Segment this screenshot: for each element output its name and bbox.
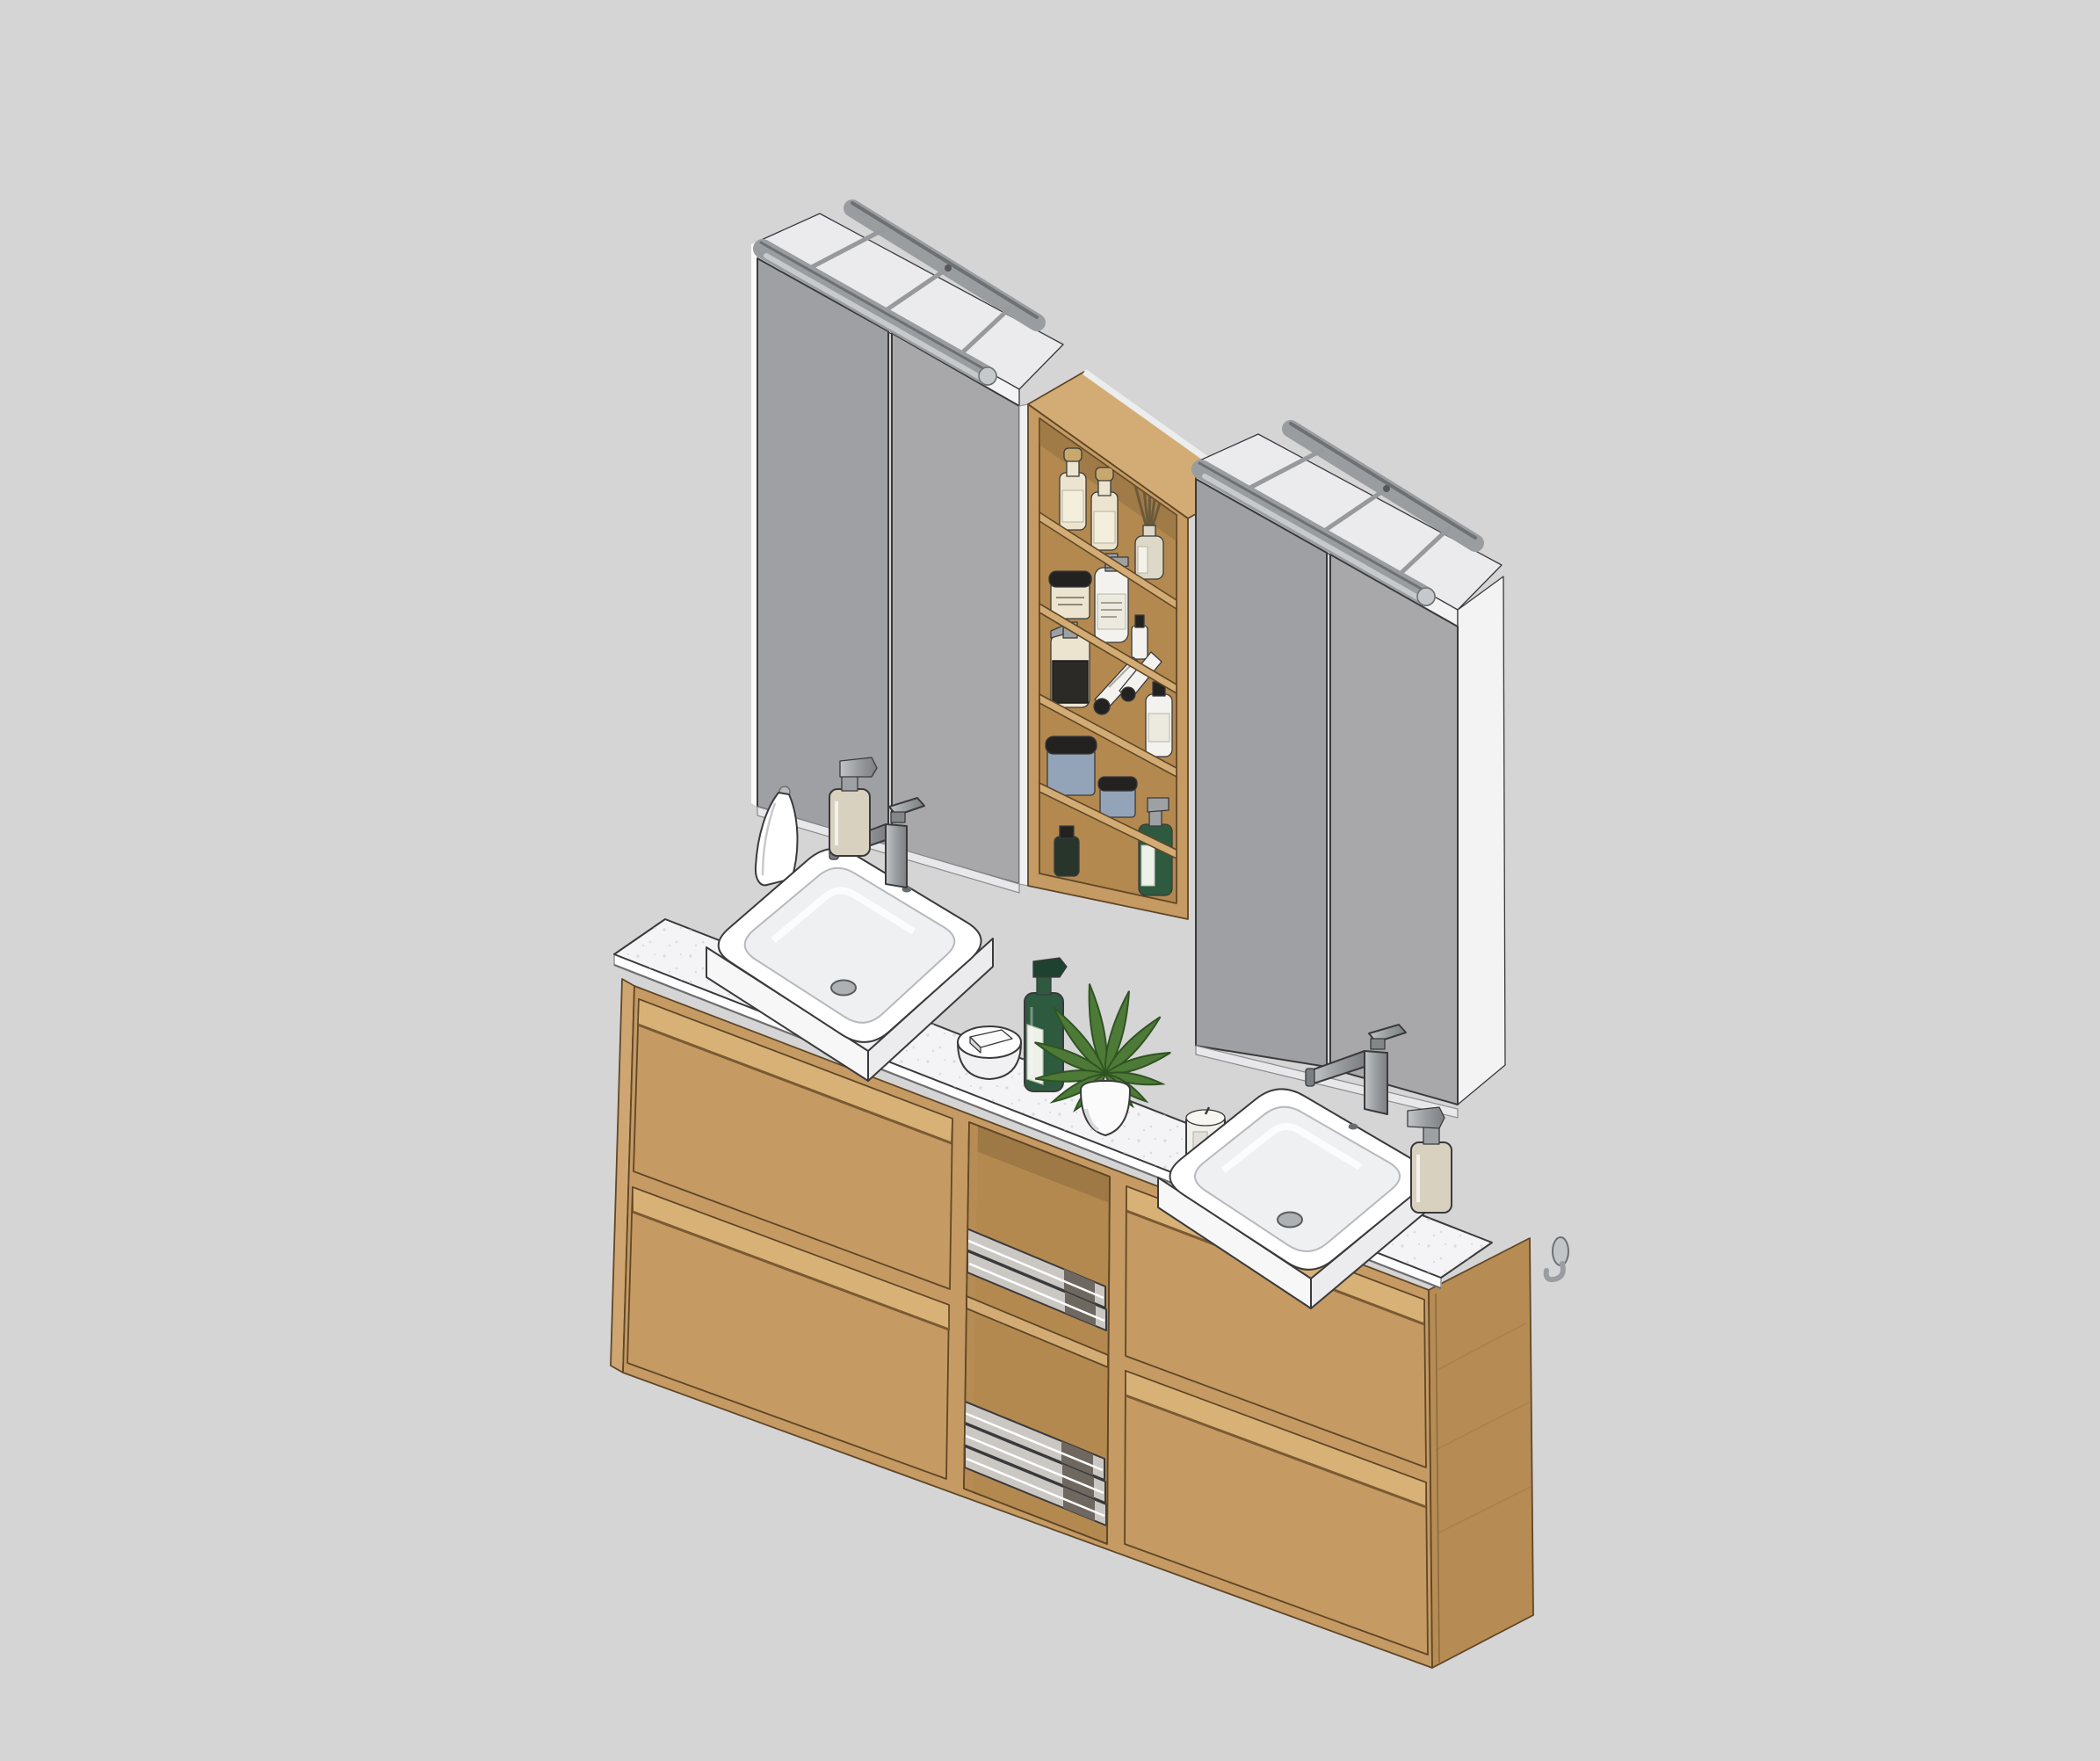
soap-dispenser-right-neck [1423, 1127, 1439, 1144]
soap-dish [958, 1026, 1021, 1079]
sink-right-overflow [1349, 1124, 1358, 1130]
sink-left-drain [831, 981, 856, 996]
towel-niche [963, 1122, 1110, 1544]
mirror-cabinet-left [751, 203, 1063, 893]
faucet-right-body [1365, 1051, 1387, 1114]
mirror-cabinet-right-side [1458, 576, 1505, 1105]
light-rail-right-endcap [1417, 588, 1435, 605]
bracket-screw [945, 265, 952, 272]
render-viewport[interactable] [0, 0, 2100, 1761]
green-soap-bottle-neck [1037, 975, 1051, 995]
vanity-side-right [1429, 1238, 1533, 1668]
mirror-cabinet-left-side-edge [751, 242, 757, 807]
scene-3d[interactable] [0, 0, 2100, 1761]
faucet-right-neck [1371, 1039, 1385, 1049]
soap-dispenser-right-pump [1408, 1107, 1445, 1128]
mirror-door-right-2 [1330, 554, 1458, 1105]
faucet-right-spout-tip [1306, 1069, 1314, 1086]
light-rail-left-endcap [979, 367, 996, 385]
green-soap-bottle-label [1027, 1025, 1043, 1084]
mirror-cabinet-right [1196, 424, 1505, 1118]
bracket-screw [1383, 485, 1390, 492]
mirror-cabinet-left-right-edge [1019, 404, 1028, 886]
faucet-left-neck [891, 812, 905, 823]
sink-right-drain [1278, 1213, 1302, 1228]
soap-dispenser-left-pump [840, 757, 877, 777]
green-soap-bottle-pump [1033, 958, 1067, 977]
mirror-door-right-1 [1196, 479, 1327, 1067]
shelf-item-cream-jar [1049, 571, 1091, 619]
faucet-left-body [886, 824, 907, 888]
